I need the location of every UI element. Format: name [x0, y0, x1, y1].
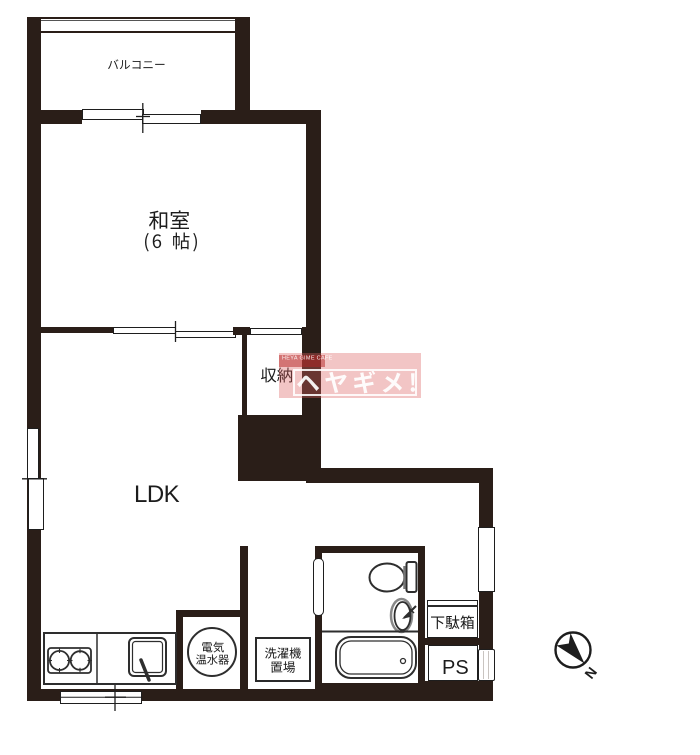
- svg-text:N: N: [582, 664, 601, 682]
